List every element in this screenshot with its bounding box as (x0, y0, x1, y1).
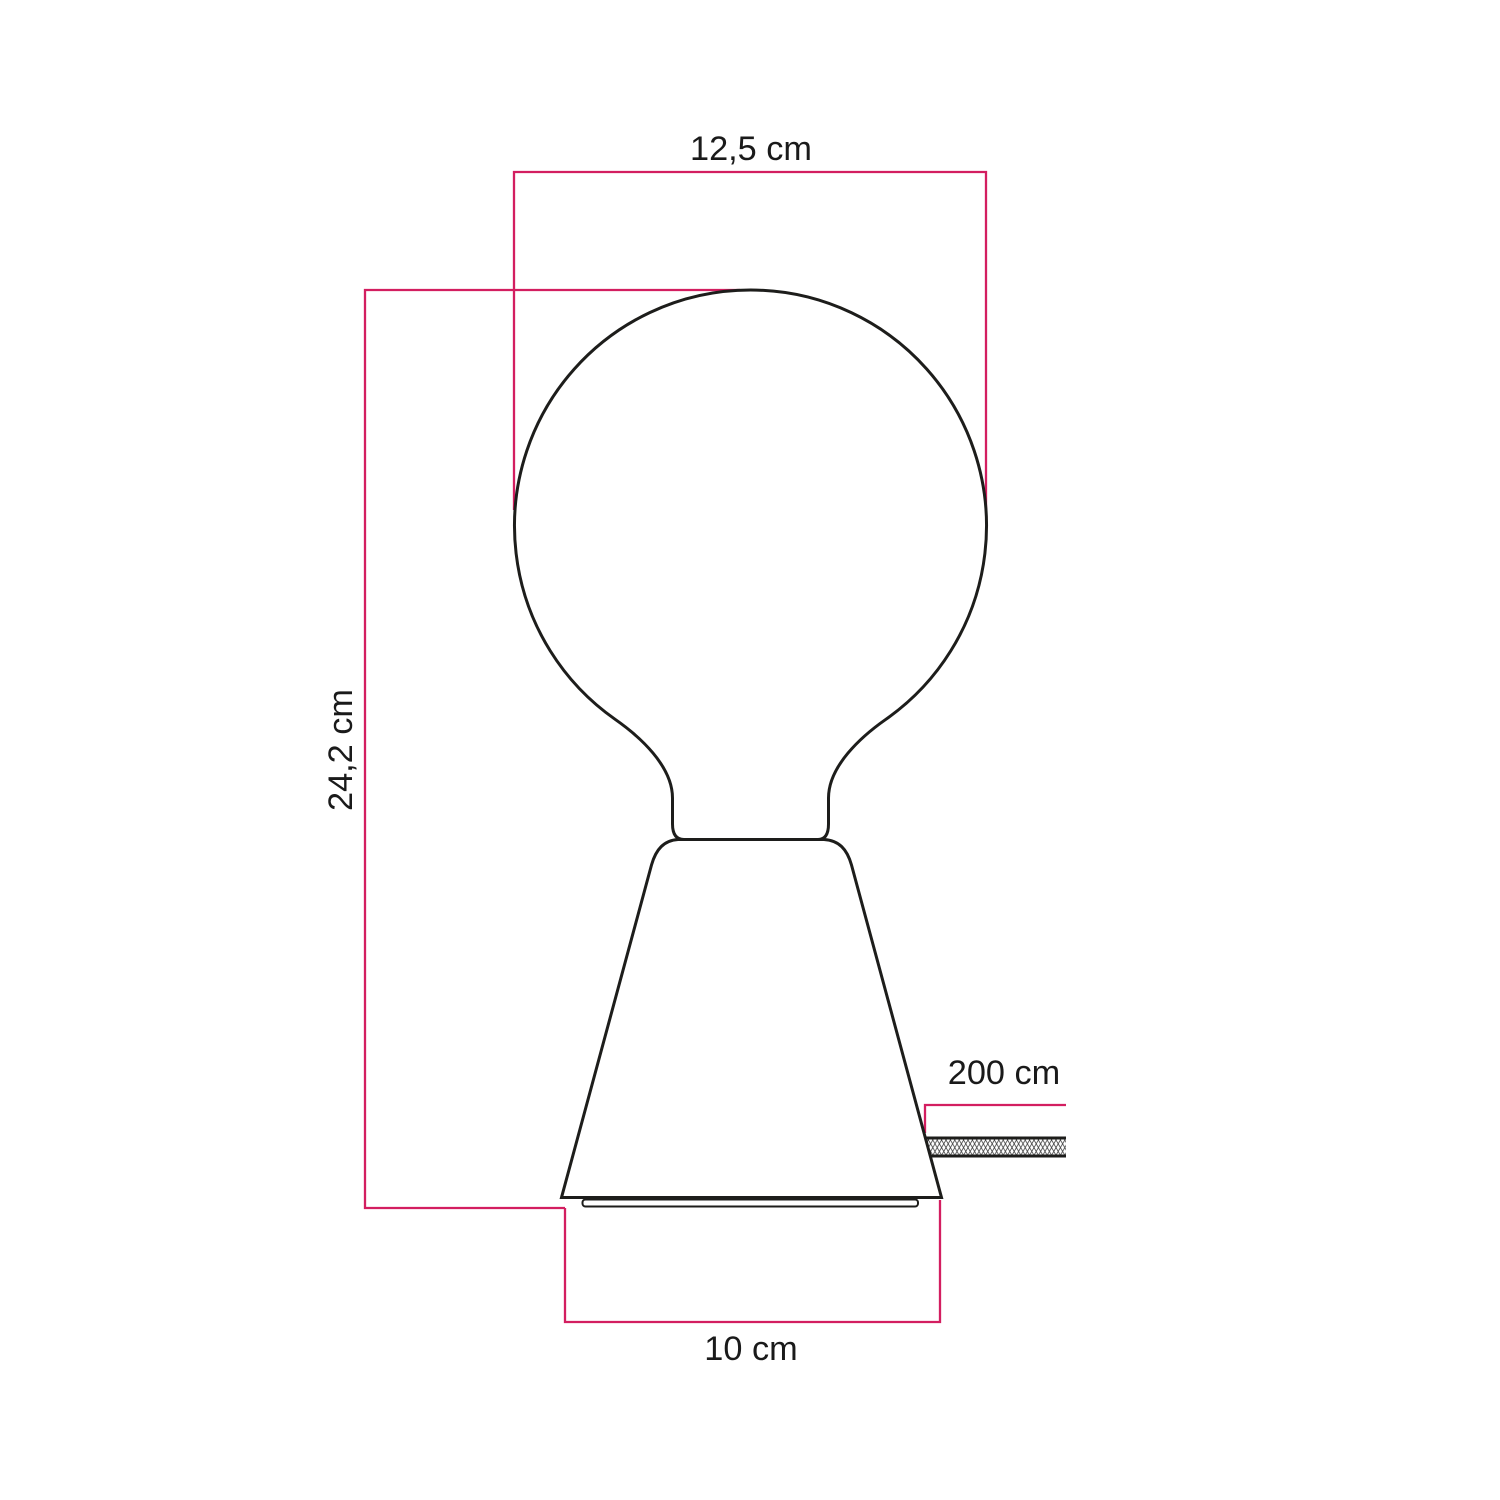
svg-text:200 cm: 200 cm (948, 1054, 1060, 1092)
svg-text:12,5 cm: 12,5 cm (690, 130, 812, 168)
svg-text:10 cm: 10 cm (704, 1330, 797, 1368)
svg-text:24,2 cm: 24,2 cm (322, 689, 360, 811)
